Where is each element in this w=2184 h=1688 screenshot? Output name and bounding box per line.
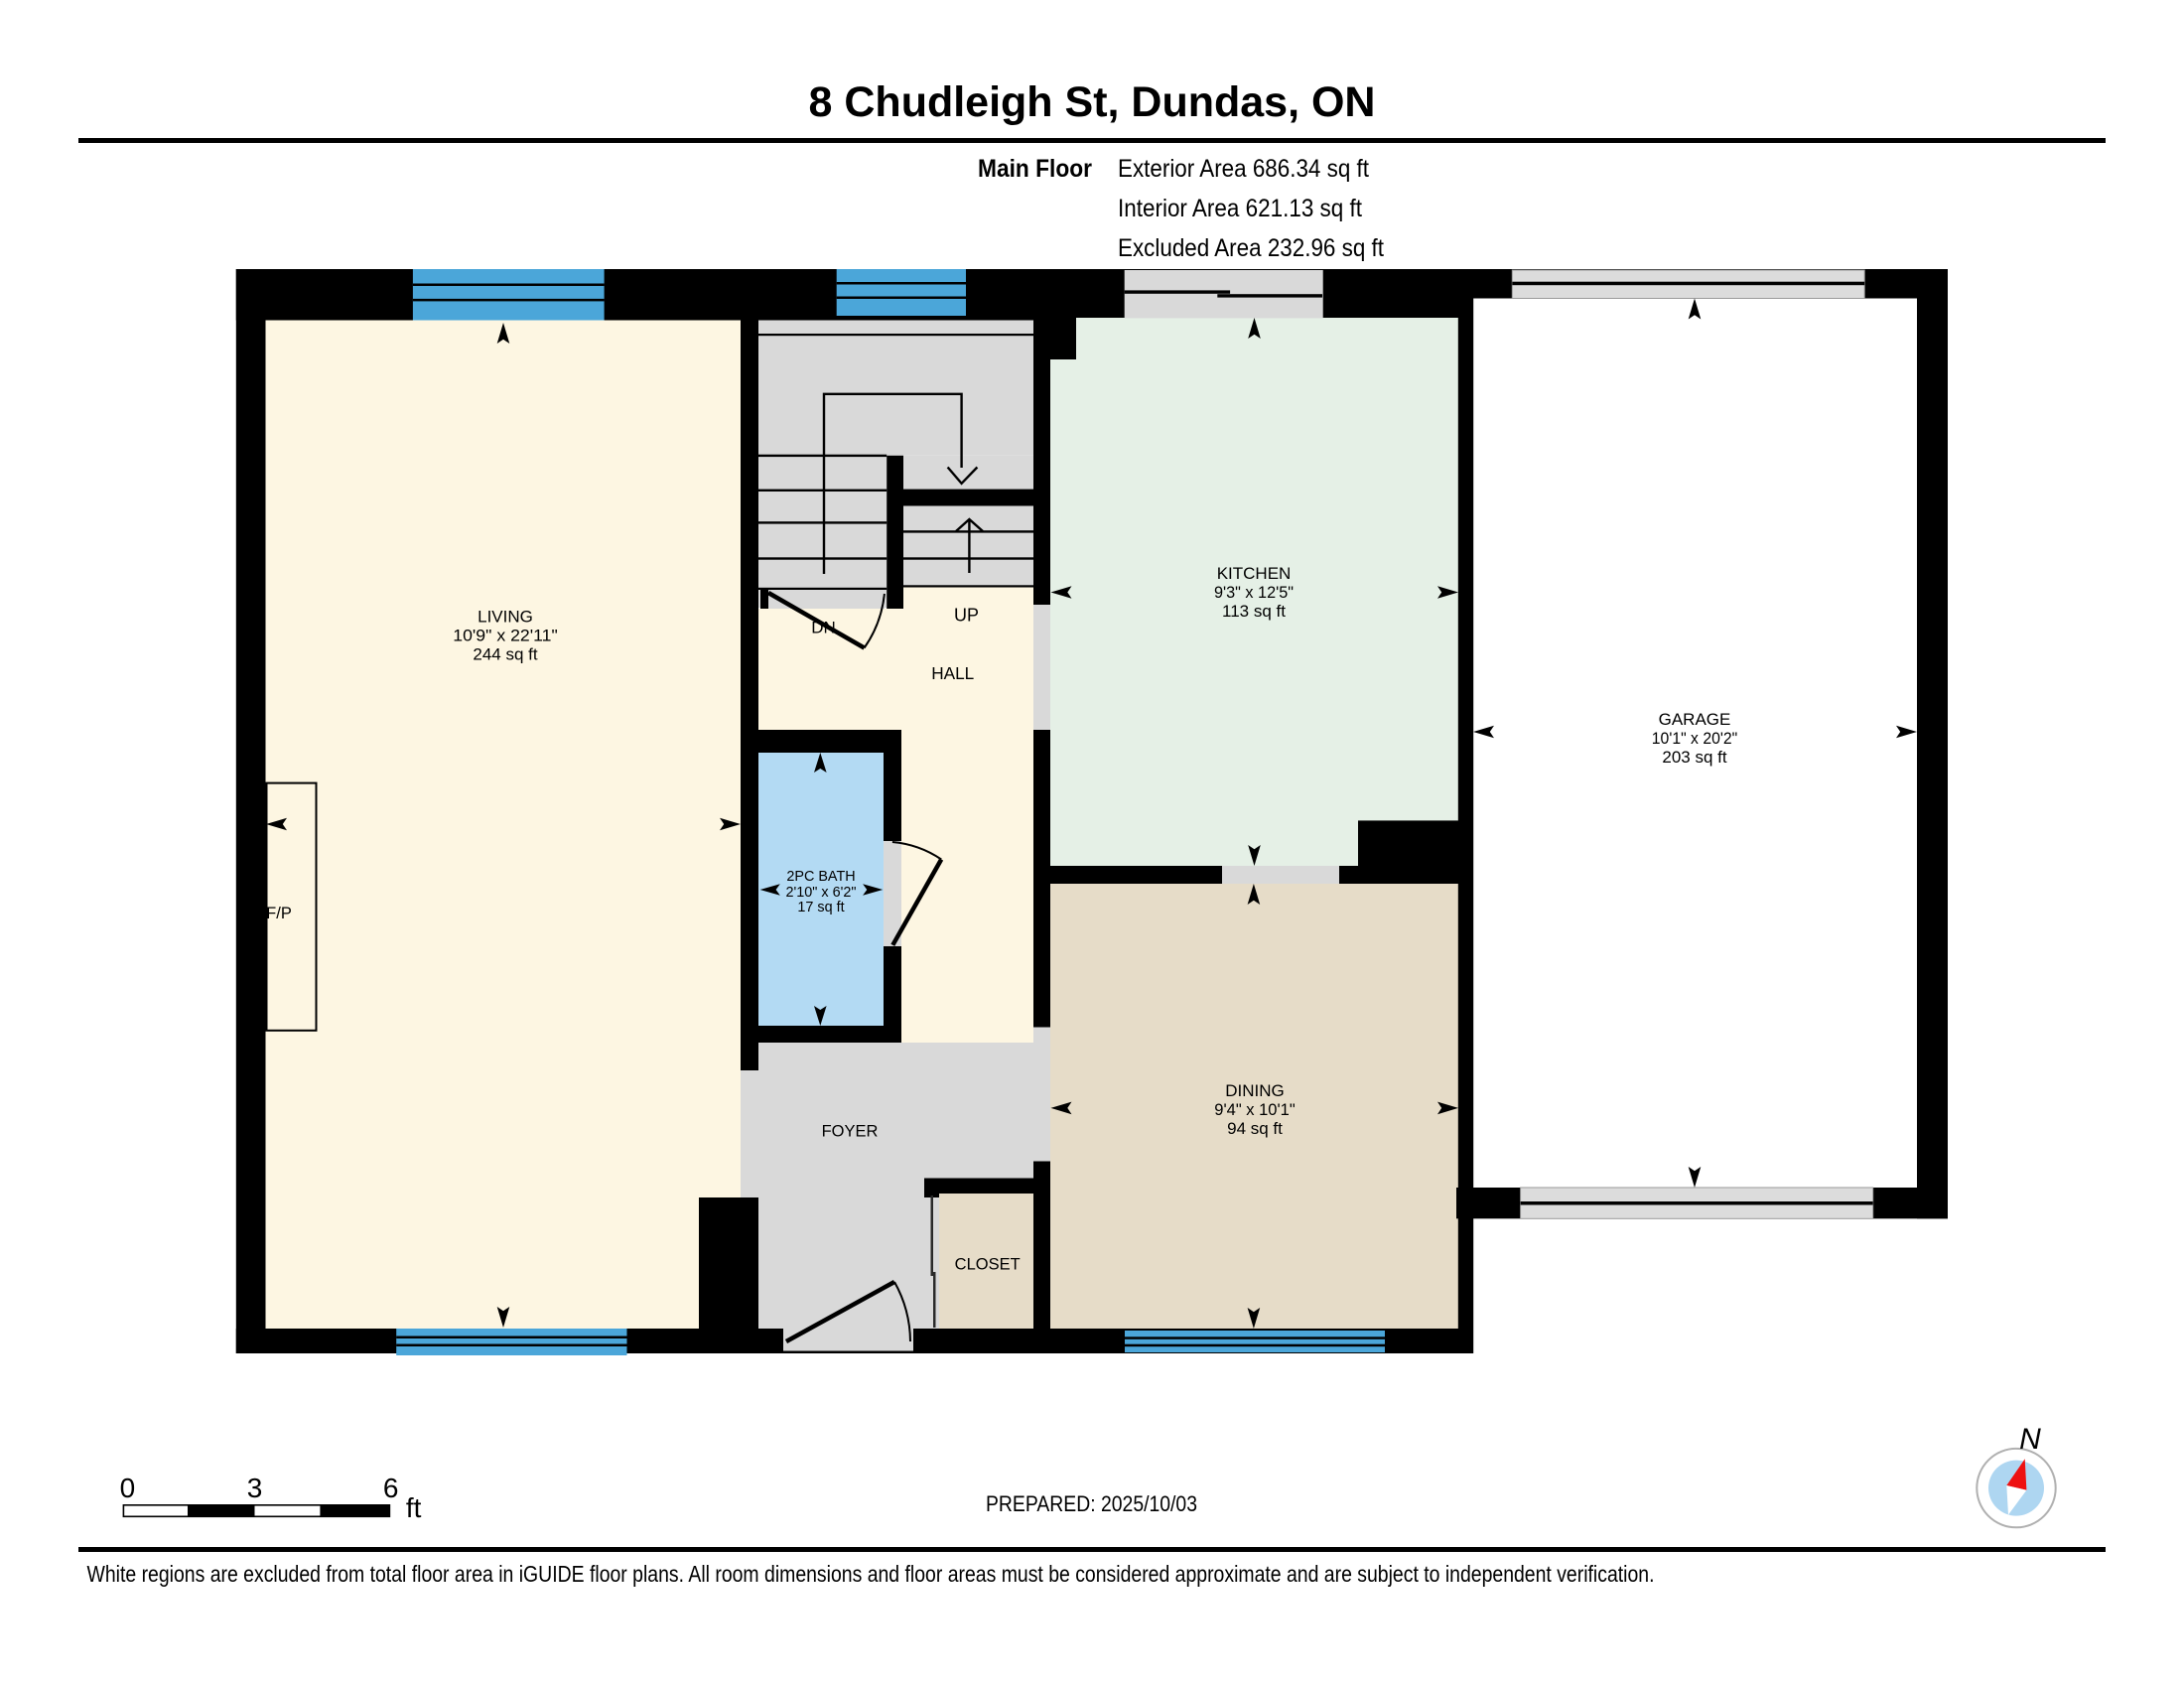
- svg-text:DINING: DINING: [1225, 1081, 1285, 1100]
- svg-text:DN: DN: [811, 618, 836, 636]
- svg-text:FOYER: FOYER: [822, 1123, 879, 1141]
- svg-text:Exterior Area 686.34 sq ft: Exterior Area 686.34 sq ft: [1118, 155, 1369, 183]
- svg-text:GARAGE: GARAGE: [1659, 710, 1731, 729]
- svg-text:2PC BATH: 2PC BATH: [786, 869, 855, 885]
- svg-text:94 sq ft: 94 sq ft: [1227, 1119, 1283, 1138]
- svg-text:2'10" x 6'2": 2'10" x 6'2": [786, 885, 857, 901]
- svg-text:KITCHEN: KITCHEN: [1217, 564, 1292, 583]
- svg-text:9'4" x 10'1": 9'4" x 10'1": [1214, 1100, 1295, 1119]
- svg-text:6: 6: [383, 1473, 399, 1503]
- svg-text:3: 3: [247, 1473, 263, 1503]
- svg-text:CLOSET: CLOSET: [955, 1256, 1021, 1274]
- svg-text:8 Chudleigh St, Dundas, ON: 8 Chudleigh St, Dundas, ON: [809, 78, 1376, 126]
- svg-text:N: N: [2019, 1423, 2041, 1456]
- svg-text:Excluded Area 232.96 sq ft: Excluded Area 232.96 sq ft: [1118, 234, 1384, 262]
- svg-text:17 sq ft: 17 sq ft: [797, 900, 844, 915]
- svg-text:Main Floor: Main Floor: [978, 155, 1092, 183]
- svg-text:203 sq ft: 203 sq ft: [1662, 748, 1726, 767]
- svg-text:10'9" x 22'11": 10'9" x 22'11": [453, 627, 558, 645]
- svg-text:White regions are excluded fro: White regions are excluded from total fl…: [87, 1561, 1655, 1587]
- svg-text:F/P: F/P: [266, 905, 292, 922]
- svg-text:0: 0: [120, 1473, 136, 1503]
- svg-text:Interior Area 621.13 sq ft: Interior Area 621.13 sq ft: [1118, 195, 1362, 222]
- svg-text:244 sq ft: 244 sq ft: [473, 645, 537, 664]
- svg-text:HALL: HALL: [931, 663, 974, 683]
- svg-text:PREPARED: 2025/10/03: PREPARED: 2025/10/03: [986, 1491, 1197, 1516]
- svg-text:ft: ft: [406, 1492, 422, 1523]
- svg-text:UP: UP: [954, 605, 979, 625]
- svg-text:113 sq ft: 113 sq ft: [1222, 602, 1286, 621]
- svg-text:10'1" x 20'2": 10'1" x 20'2": [1652, 729, 1737, 748]
- svg-text:9'3" x 12'5": 9'3" x 12'5": [1214, 583, 1294, 602]
- svg-text:LIVING: LIVING: [478, 607, 533, 626]
